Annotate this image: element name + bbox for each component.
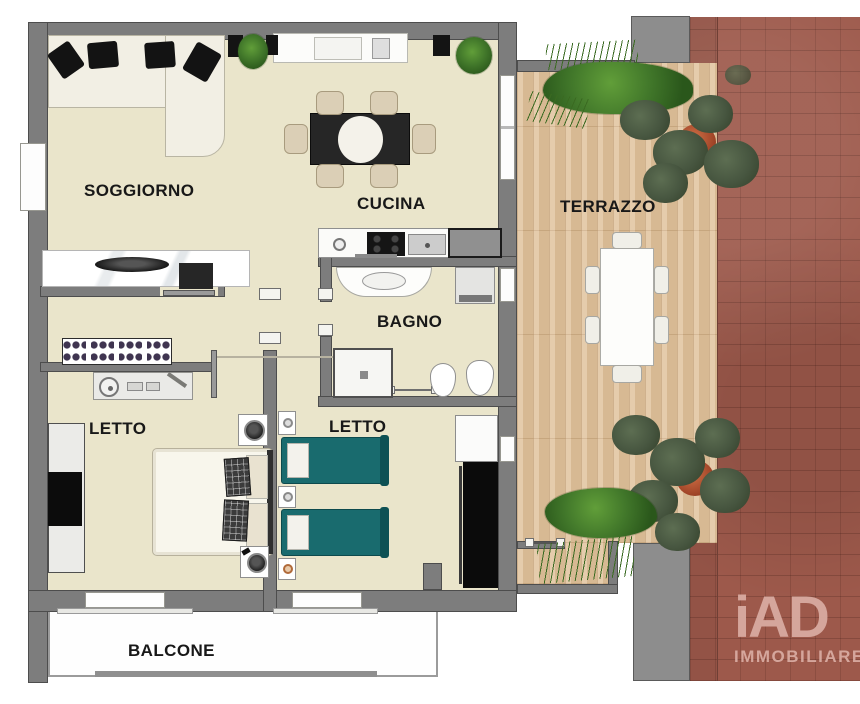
agency-logo: iAD: [734, 590, 860, 645]
nightstand-item: [241, 547, 250, 555]
wardrobe-bedroom2: [463, 462, 498, 588]
desk-chair: [99, 377, 119, 397]
shower: [333, 348, 393, 398]
plaid-pillow: [224, 457, 252, 497]
sofa-pillow: [87, 41, 119, 70]
nightstand: [240, 546, 269, 578]
window-bedroom2: [500, 436, 515, 462]
room-label-balcone: BALCONE: [128, 641, 215, 661]
terrace-door: [500, 75, 515, 180]
lamp: [283, 564, 293, 574]
door-jamb: [259, 332, 281, 344]
gate-post: [525, 538, 534, 547]
balcony-sill-2: [273, 608, 378, 614]
stove: [367, 232, 405, 256]
dining-chair: [412, 124, 436, 154]
outdoor-table: [600, 248, 654, 366]
balcony-sill-1: [57, 608, 193, 614]
washing-machine: [455, 267, 495, 304]
indoor-plant: [238, 34, 268, 69]
console-box: [179, 263, 213, 289]
tree-foliage: [695, 418, 740, 458]
concrete-block-bottom: [633, 543, 690, 681]
threshold-line: [217, 356, 345, 358]
dining-chair: [370, 91, 398, 115]
bed-pillow: [287, 515, 309, 550]
room-label-letto1: LETTO: [89, 419, 146, 439]
sideboard-item: [372, 38, 390, 59]
cabinet-bedroom2: [455, 415, 498, 462]
nightstand: [278, 558, 296, 580]
dining-chair: [316, 164, 344, 188]
desk: [93, 372, 193, 400]
outdoor-chair: [612, 232, 642, 249]
desk-item: [127, 382, 143, 391]
drain: [360, 371, 368, 379]
floor-plan: SOGGIORNO CUCINA TERRAZZO BAGNO LETTO LE…: [0, 0, 860, 704]
lamp: [283, 418, 293, 428]
window-bath: [500, 268, 515, 302]
dining-chair: [316, 91, 344, 115]
outdoor-chair: [612, 365, 642, 383]
desk-pen: [167, 372, 187, 388]
plaid-pillow: [222, 499, 249, 541]
terrace-door-mullion: [501, 126, 514, 129]
washer-base: [459, 295, 492, 302]
lamp: [244, 420, 265, 441]
decor-bowl: [95, 257, 169, 272]
tv-unit: [48, 472, 82, 526]
agency-subtitle: IMMOBILIARE: [734, 647, 860, 667]
dining-chair: [370, 164, 398, 188]
tree-foliage: [688, 95, 733, 133]
outdoor-chair: [585, 266, 600, 294]
door-jamb: [318, 324, 333, 336]
balcony-rail: [95, 671, 377, 677]
desk-item: [146, 382, 160, 391]
lamp: [247, 553, 267, 573]
balcony: [48, 610, 438, 677]
ceiling-spot: [433, 35, 450, 56]
grass-blades: [536, 536, 635, 584]
tree-foliage: [700, 468, 750, 513]
window-left-wall: [20, 143, 46, 211]
window-balcony-2: [292, 592, 362, 608]
bed-pillow: [246, 503, 268, 547]
faucet: [425, 243, 430, 248]
kettle: [333, 238, 346, 251]
door-jamb: [318, 288, 333, 300]
tree-sprig: [725, 65, 751, 85]
kitchen-sink: [408, 234, 446, 255]
concrete-block-top: [631, 16, 690, 63]
room-label-soggiorno: SOGGIORNO: [84, 181, 194, 201]
tree-foliage: [655, 513, 700, 551]
chair-center: [108, 386, 113, 391]
stove-knobs: [355, 254, 397, 258]
sideboard-item: [314, 37, 362, 60]
nightstand: [278, 411, 296, 435]
outdoor-chair: [654, 316, 669, 344]
outdoor-chair: [585, 316, 600, 344]
dining-table: [310, 113, 410, 165]
wall-bedroom2-stub: [423, 563, 442, 590]
bathroom-sink: [336, 267, 432, 297]
door-jamb: [259, 288, 281, 300]
wardrobe-door-edge: [459, 466, 462, 584]
indoor-plant: [456, 37, 492, 74]
bed-pillow: [287, 443, 309, 478]
table-runner: [338, 116, 383, 163]
wall-left: [28, 22, 48, 683]
marble-console: [42, 250, 250, 287]
room-label-cucina: CUCINA: [357, 194, 426, 214]
room-label-letto2: LETTO: [329, 417, 386, 437]
lamp: [283, 492, 293, 502]
bush: [545, 488, 657, 538]
room-label-terrazzo: TERRAZZO: [560, 197, 656, 217]
fridge: [448, 228, 502, 258]
sofa-pillow: [144, 41, 176, 69]
tree-foliage: [704, 140, 759, 188]
door-leaf-living: [163, 290, 215, 296]
nightstand: [238, 414, 268, 446]
kitchen-sideboard: [273, 33, 408, 63]
agency-watermark: iAD IMMOBILIARE: [734, 590, 860, 667]
room-label-bagno: BAGNO: [377, 312, 442, 332]
window-balcony-1: [85, 592, 165, 608]
outdoor-chair: [654, 266, 669, 294]
dining-chair: [284, 124, 308, 154]
nightstand: [278, 486, 296, 508]
wall-terrace-pocket-bottom: [517, 584, 618, 594]
hall-dresser: [62, 338, 172, 365]
basin: [362, 272, 406, 290]
door-symbol-bath: [393, 389, 433, 391]
